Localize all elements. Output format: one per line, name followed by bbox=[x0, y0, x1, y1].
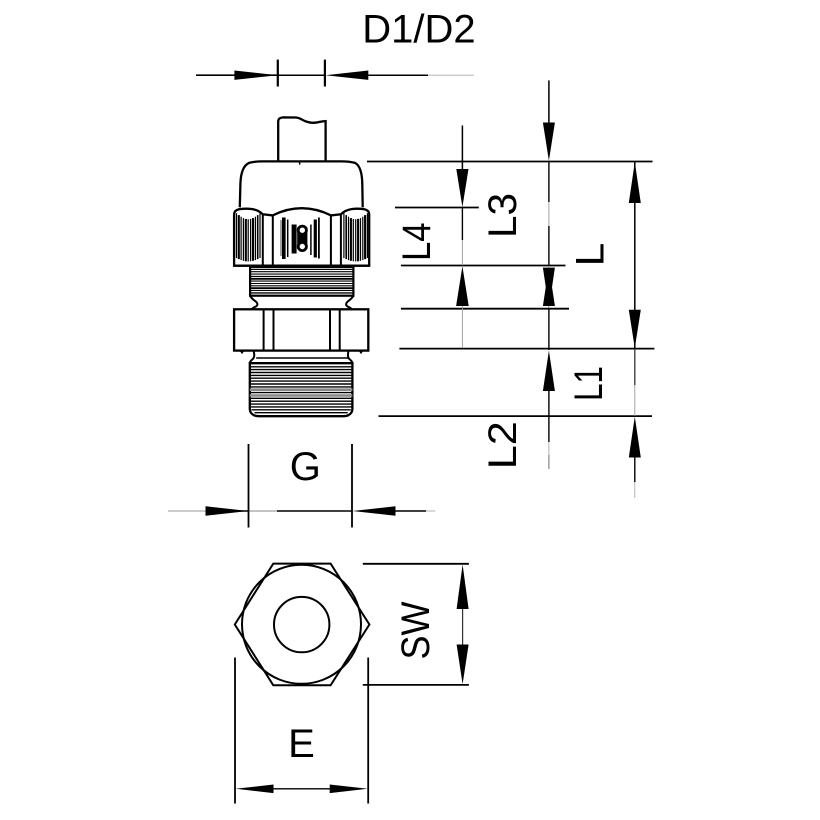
svg-text:SW: SW bbox=[394, 601, 438, 659]
svg-text:L3: L3 bbox=[481, 193, 525, 238]
svg-text:L2: L2 bbox=[481, 421, 525, 469]
svg-text:G: G bbox=[290, 445, 321, 489]
svg-text:D1/D2: D1/D2 bbox=[362, 8, 475, 52]
svg-text:L: L bbox=[569, 243, 613, 267]
svg-text:E: E bbox=[288, 722, 315, 766]
svg-text:L1: L1 bbox=[567, 366, 611, 401]
svg-text:L4: L4 bbox=[395, 223, 439, 262]
